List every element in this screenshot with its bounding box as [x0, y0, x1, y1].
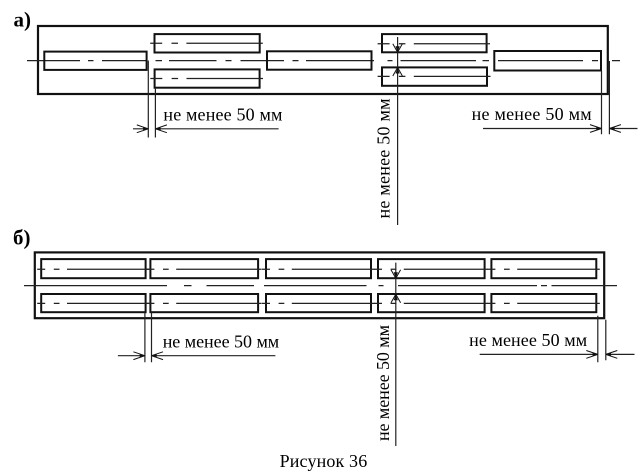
- svg-text:не менее 50 мм: не менее 50 мм: [373, 99, 393, 219]
- svg-text:б): б): [13, 226, 31, 250]
- svg-text:не менее 50 мм: не менее 50 мм: [472, 104, 592, 124]
- svg-text:не менее 50 мм: не менее 50 мм: [163, 331, 280, 351]
- svg-text:а): а): [14, 8, 32, 32]
- svg-text:не менее 50 мм: не менее 50 мм: [469, 330, 587, 350]
- svg-text:Рисунок 36: Рисунок 36: [280, 451, 368, 471]
- svg-text:не менее 50 мм: не менее 50 мм: [373, 325, 393, 441]
- svg-text:не менее 50 мм: не менее 50 мм: [163, 105, 282, 125]
